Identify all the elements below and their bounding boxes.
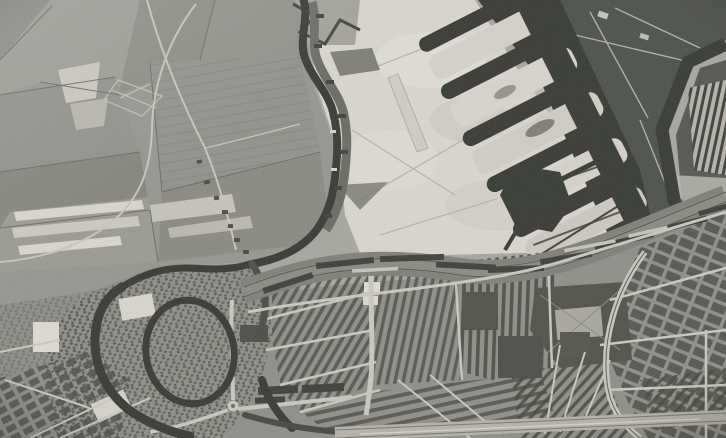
aerial-photo-canvas [0,0,726,438]
aerial-photograph [0,0,726,438]
film-grain [0,0,726,438]
